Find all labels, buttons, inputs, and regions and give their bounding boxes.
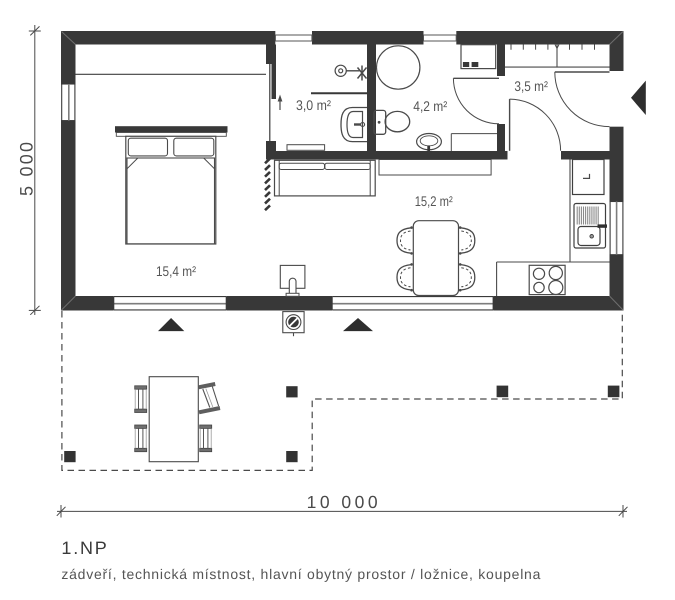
svg-text:3,0 m²: 3,0 m² — [296, 97, 331, 113]
svg-text:5 000: 5 000 — [17, 142, 37, 196]
svg-text:15,4 m²: 15,4 m² — [156, 263, 196, 279]
svg-text:15,2 m²: 15,2 m² — [415, 193, 453, 209]
svg-text:1.NP: 1.NP — [61, 538, 106, 558]
svg-text:4,2 m²: 4,2 m² — [413, 98, 447, 114]
svg-text:3,5 m²: 3,5 m² — [514, 78, 548, 94]
svg-text:zádveří, technická místnost, h: zádveří, technická místnost, hlavní obyt… — [61, 566, 540, 582]
